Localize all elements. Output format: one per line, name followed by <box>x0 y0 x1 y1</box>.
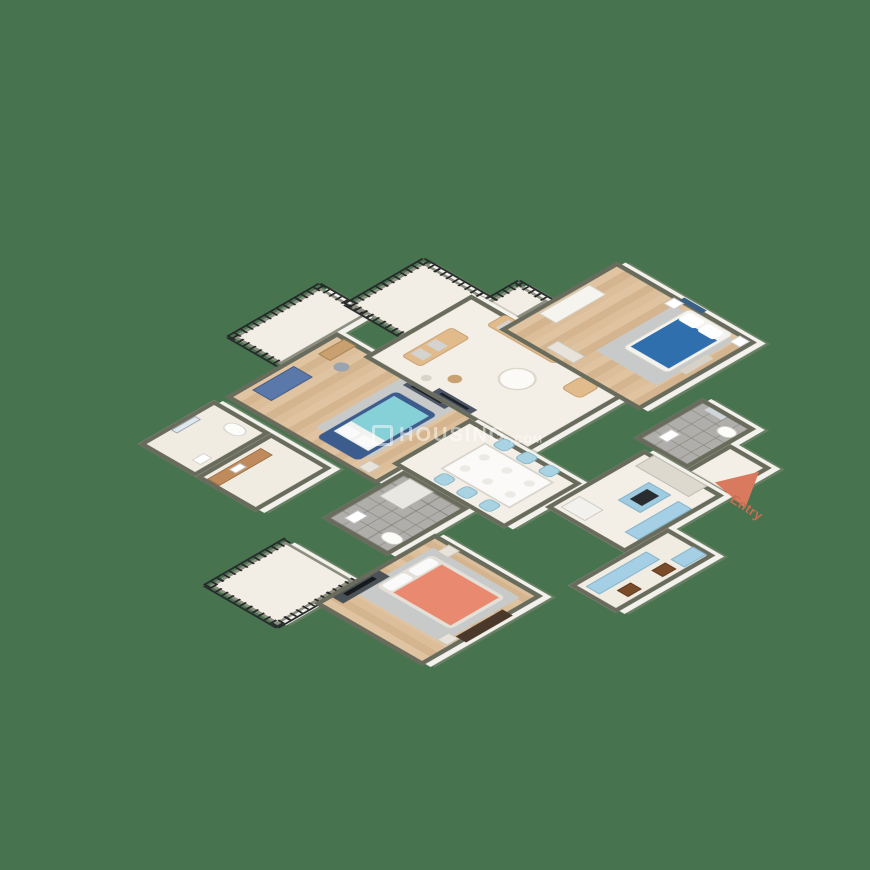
wash-basin <box>344 510 368 524</box>
toilet <box>219 421 250 439</box>
window <box>171 416 201 434</box>
fridge <box>560 496 603 521</box>
wardrobe-white <box>539 285 607 324</box>
sink <box>192 453 213 465</box>
nightstand <box>729 336 750 348</box>
toilet <box>377 530 407 548</box>
isometric-floor-plan <box>0 187 870 732</box>
balcony-railing <box>203 538 292 590</box>
floor-lamp <box>418 374 434 383</box>
balcony-railing <box>203 582 284 629</box>
balcony-railing <box>226 334 287 369</box>
toilet <box>713 424 741 440</box>
wash-basin-brown <box>651 563 676 578</box>
dresser <box>546 341 586 364</box>
coffee-table <box>489 363 544 395</box>
nightstand <box>358 460 381 474</box>
chair <box>330 361 353 374</box>
bedroom-3 <box>314 534 543 667</box>
cabinet-blue <box>670 547 706 568</box>
balcony-railing <box>343 258 430 308</box>
shower-panel <box>704 407 727 420</box>
floorplan-scene: HOUSING .COM Entry <box>0 0 870 870</box>
wash-basin-brown <box>617 583 642 598</box>
dining-table <box>440 443 554 509</box>
side-table <box>444 373 465 385</box>
balcony-railing <box>418 258 492 301</box>
wardrobe-blue <box>252 366 313 401</box>
balcony-railing <box>226 283 326 341</box>
desk <box>318 339 356 361</box>
wash-basin <box>657 429 680 443</box>
